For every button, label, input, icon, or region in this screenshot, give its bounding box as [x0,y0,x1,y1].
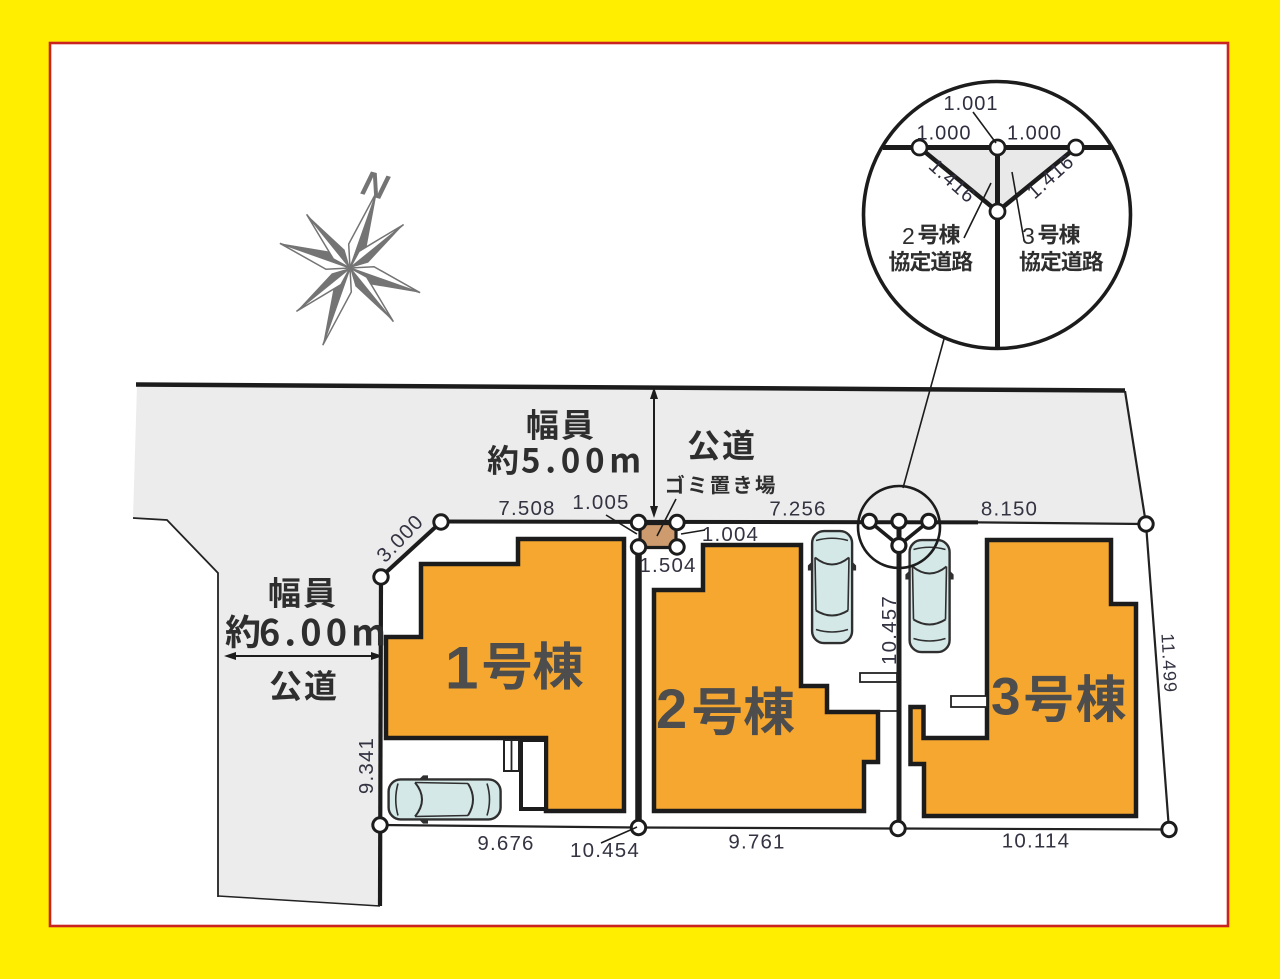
svg-text:9.676: 9.676 [477,832,534,855]
svg-text:11.499: 11.499 [1157,633,1180,694]
svg-text:7.256: 7.256 [769,498,826,521]
svg-text:1.000: 1.000 [1007,123,1062,145]
svg-text:1.004: 1.004 [702,523,759,546]
svg-text:8.150: 8.150 [981,498,1038,521]
svg-text:2: 2 [902,223,915,249]
svg-text:10.114: 10.114 [1002,830,1070,853]
svg-text:7.508: 7.508 [498,497,555,520]
svg-text:1: 1 [445,635,478,702]
svg-text:10.457: 10.457 [878,595,901,665]
svg-text:2: 2 [656,677,687,740]
svg-text:1.504: 1.504 [639,554,696,577]
svg-text:9.341: 9.341 [355,737,378,794]
svg-text:3: 3 [1022,223,1035,249]
svg-text:1.000: 1.000 [916,123,971,145]
svg-text:1.001: 1.001 [943,93,998,115]
svg-text:10.454: 10.454 [570,839,640,862]
svg-text:3: 3 [991,668,1020,727]
svg-text:1.005: 1.005 [572,491,629,514]
svg-text:9.761: 9.761 [728,831,785,854]
